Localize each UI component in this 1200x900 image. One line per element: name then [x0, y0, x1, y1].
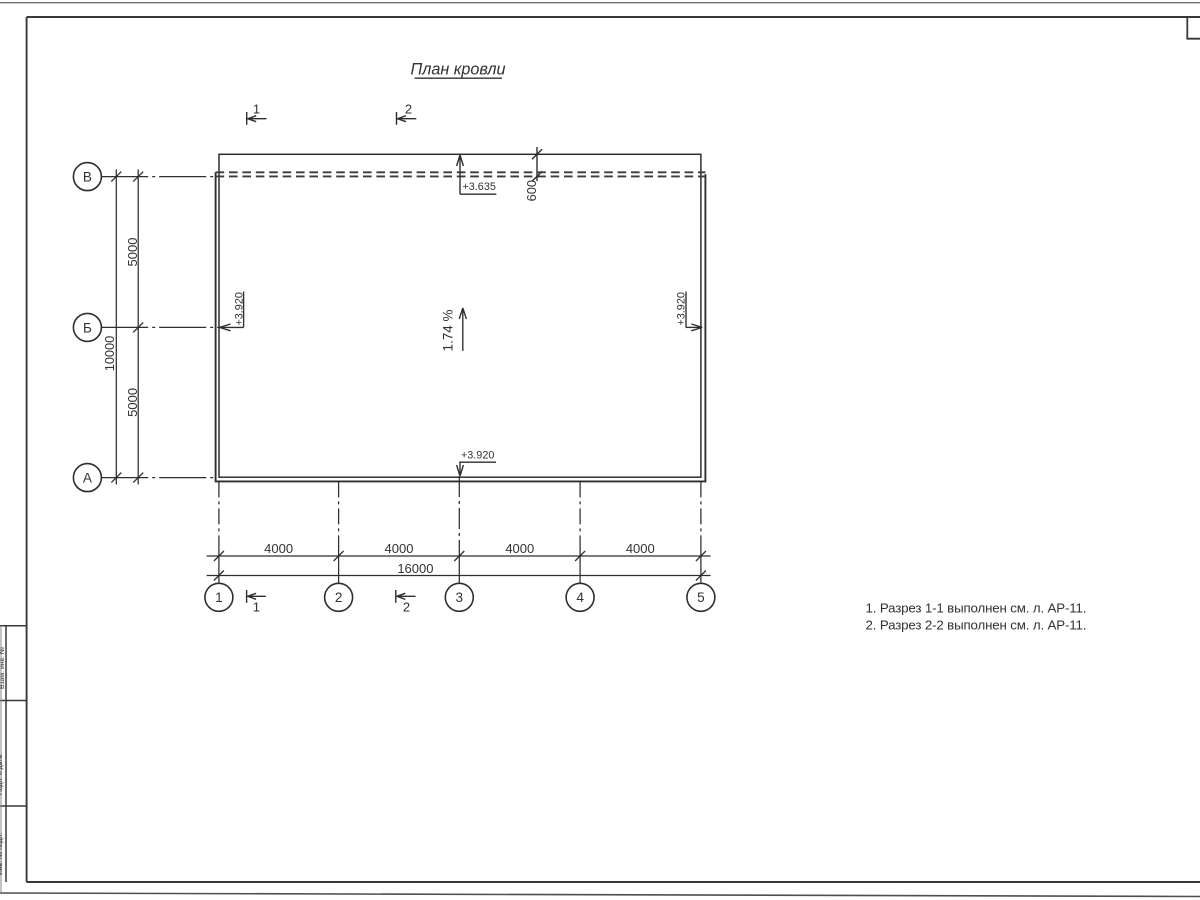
- svg-text:4000: 4000: [385, 541, 414, 556]
- svg-text:+3.920: +3.920: [234, 292, 246, 325]
- svg-text:2. Разрез 2-2 выполнен см. л.: 2. Разрез 2-2 выполнен см. л. АР-11.: [866, 617, 1087, 632]
- svg-text:Подп. и дата: Подп. и дата: [0, 755, 4, 795]
- svg-text:3: 3: [456, 590, 464, 605]
- svg-text:Инв. № подл.: Инв. № подл.: [0, 833, 4, 875]
- svg-text:4000: 4000: [505, 541, 534, 556]
- svg-text:5: 5: [697, 590, 705, 605]
- svg-text:2: 2: [403, 600, 410, 615]
- svg-text:2: 2: [335, 590, 343, 605]
- svg-text:2: 2: [405, 102, 412, 117]
- svg-text:План кровли: План кровли: [411, 61, 506, 79]
- svg-text:1.74 %: 1.74 %: [441, 309, 456, 351]
- svg-text:1: 1: [253, 102, 260, 117]
- svg-text:4: 4: [576, 590, 584, 605]
- svg-text:5000: 5000: [125, 388, 140, 417]
- svg-text:5000: 5000: [125, 238, 140, 267]
- svg-text:4000: 4000: [626, 541, 655, 556]
- svg-text:Б: Б: [83, 320, 92, 335]
- svg-text:Взам. инв. №: Взам. инв. №: [0, 647, 6, 689]
- svg-text:А: А: [83, 471, 93, 486]
- svg-text:+3.635: +3.635: [463, 181, 496, 193]
- svg-text:+3.920: +3.920: [676, 292, 688, 325]
- svg-text:+3.920: +3.920: [461, 450, 494, 462]
- svg-text:1. Разрез 1-1 выполнен см. л.: 1. Разрез 1-1 выполнен см. л. АР-11.: [866, 601, 1087, 616]
- svg-text:В: В: [83, 170, 92, 185]
- svg-text:1: 1: [253, 600, 260, 615]
- svg-text:1: 1: [215, 590, 223, 605]
- svg-text:16000: 16000: [397, 561, 433, 576]
- svg-text:600: 600: [524, 180, 539, 201]
- svg-text:4000: 4000: [264, 541, 293, 556]
- svg-text:10000: 10000: [102, 336, 117, 372]
